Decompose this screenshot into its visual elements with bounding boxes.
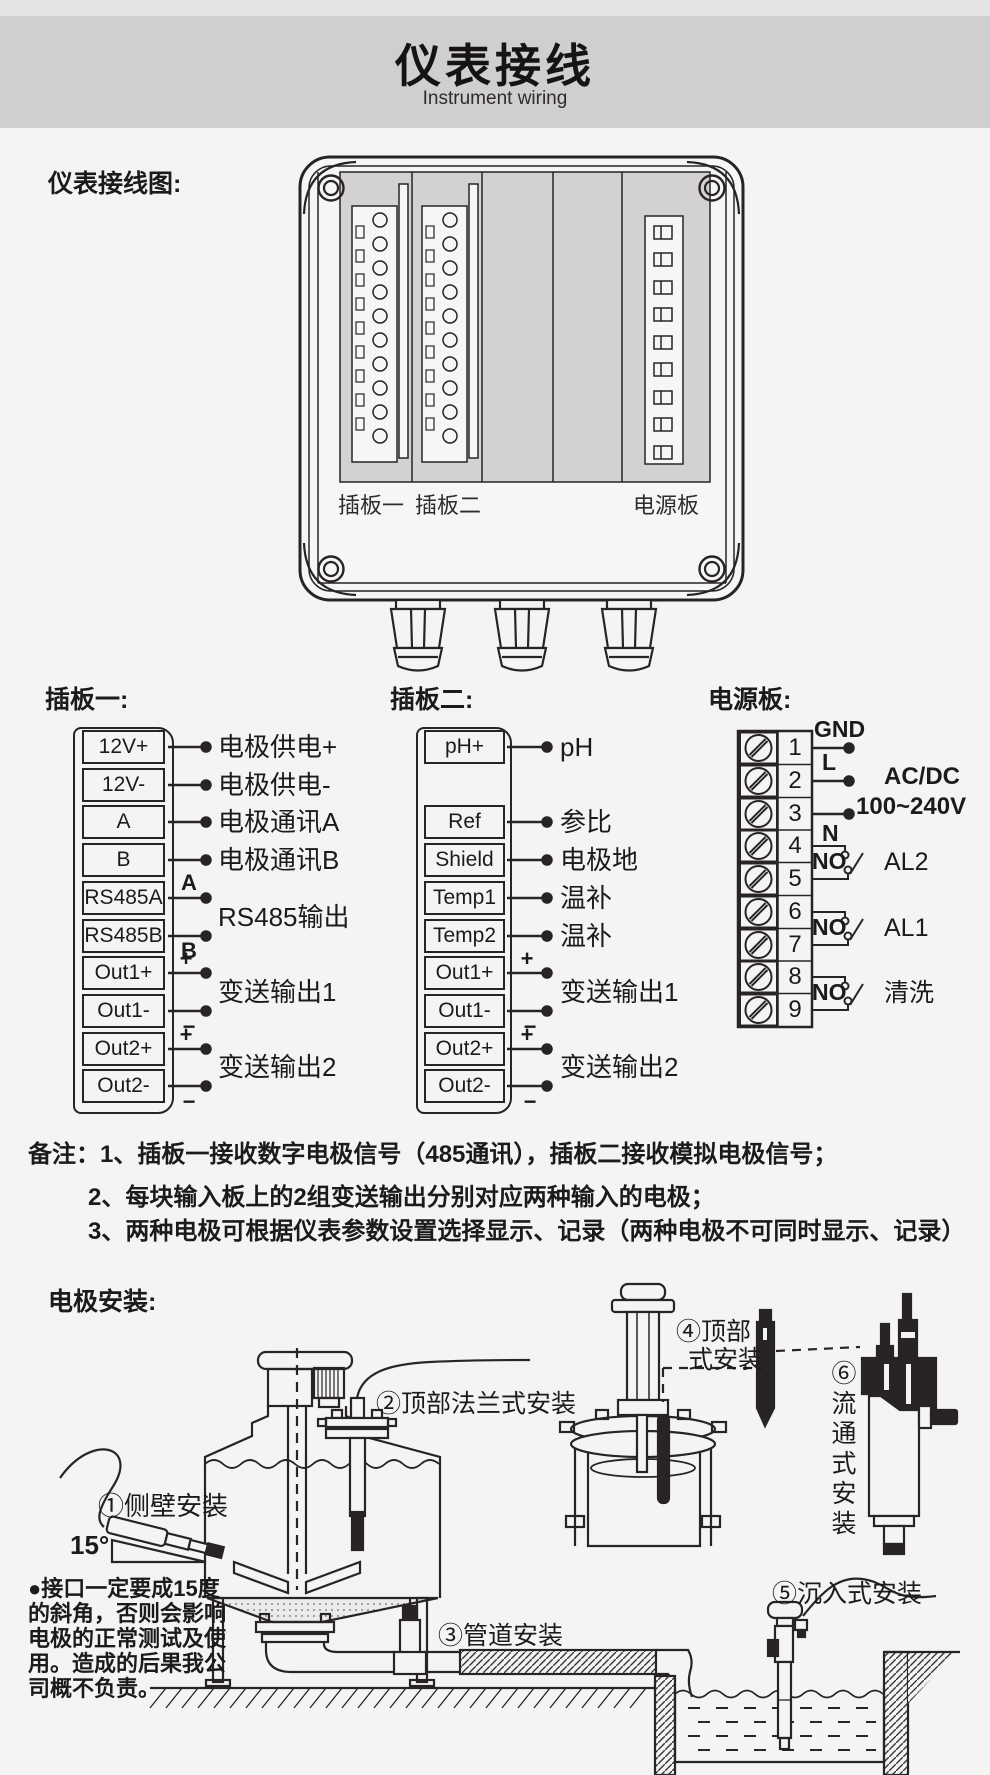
board2-wire-label-temp2: 温补 xyxy=(560,920,612,952)
board2-terminal-ref: Ref xyxy=(424,805,505,839)
board2-terminal-temp1: Temp1 xyxy=(424,881,505,915)
power-gnd-label: GND xyxy=(814,716,865,743)
board1-terminal-12v-minus: 12V- xyxy=(82,768,165,802)
power-terminal-9: 9 xyxy=(780,996,810,1024)
enclosure-drawing xyxy=(300,157,743,671)
power-terminal-7: 7 xyxy=(780,931,810,959)
board2-wire-label-ph: pH xyxy=(560,731,593,763)
board2-wire-label-ref: 参比 xyxy=(560,806,612,838)
power-terminal-3: 3 xyxy=(780,800,810,828)
install-warning-line3: 电极的正常测试及使 xyxy=(28,1626,226,1651)
power-supply-label-2: 100~240V xyxy=(856,793,966,821)
board1-out1-tag-plus: + xyxy=(175,946,197,972)
board1-terminal-rs485b: RS485B xyxy=(82,919,165,953)
board1-terminal-out1-minus: Out1- xyxy=(82,994,165,1028)
board1-terminal-out2-minus: Out2- xyxy=(82,1069,165,1103)
notes-line-2: 2、每块输入板上的2组变送输出分别对应两种输入的电极； xyxy=(88,1184,715,1212)
board2-terminal-out2-minus: Out2- xyxy=(424,1069,505,1103)
board2-terminal-out1-minus: Out1- xyxy=(424,994,505,1028)
install-method1-label: ①侧壁安装 xyxy=(98,1486,228,1523)
flow-cell-drawing xyxy=(862,1294,957,1554)
power-terminal-1: 1 xyxy=(780,734,810,762)
board2-terminal-out1-plus: Out1+ xyxy=(424,956,505,990)
install-method4-label-line2: 式安装 xyxy=(688,1340,763,1376)
board1-wire-label-supply-plus: 电极供电+ xyxy=(218,731,337,763)
board1-out2-tag-plus: + xyxy=(175,1022,197,1048)
enclosure-label-slot2: 插板二 xyxy=(415,488,481,520)
board2-out1-label: 变送输出1 xyxy=(560,976,678,1008)
board1-terminal-a: A xyxy=(82,805,165,839)
install-warning-line1: ●接口一定要成15度 xyxy=(28,1576,220,1601)
board1-rs485-tag-a: A xyxy=(178,870,200,896)
install-method2-label: ②顶部法兰式安装 xyxy=(376,1384,576,1420)
board1-out2-tag-minus: − xyxy=(178,1089,200,1115)
power-relay3-no: NO xyxy=(812,979,847,1006)
install-warning-line2: 的斜角，否则会影响 xyxy=(28,1601,226,1626)
board1-wire-label-supply-minus: 电极供电- xyxy=(218,769,331,801)
board1-heading: 插板一: xyxy=(45,680,128,716)
board1-terminal-b: B xyxy=(82,843,165,877)
ground-hatch xyxy=(150,1688,658,1708)
board1-out2-label: 变送输出2 xyxy=(218,1051,336,1083)
header-top-strip xyxy=(0,0,990,16)
board2-heading: 插板二: xyxy=(390,680,473,716)
board1-terminal-out2-plus: Out2+ xyxy=(82,1032,165,1066)
enclosure-label-power: 电源板 xyxy=(633,488,699,520)
board1-terminal-out1-plus: Out1+ xyxy=(82,956,165,990)
board2-terminal-temp2: Temp2 xyxy=(424,919,505,953)
power-terminal-5: 5 xyxy=(780,865,810,893)
board1-out1-label: 变送输出1 xyxy=(218,976,336,1008)
board2-terminal-ph-plus: pH+ xyxy=(424,730,505,764)
power-relay2-no: NO xyxy=(812,914,847,941)
board2-wire-label-temp1: 温补 xyxy=(560,882,612,914)
board1-wire-label-comm-a: 电极通讯A xyxy=(218,806,339,838)
board2-terminal-out2-plus: Out2+ xyxy=(424,1032,505,1066)
install-method6-label: ⑥流通式安装 xyxy=(824,1360,860,1540)
board2-wire-label-shield: 电极地 xyxy=(560,844,638,876)
board1-rs485-output-label: RS485输出 xyxy=(218,901,350,933)
power-relay1-label: AL2 xyxy=(884,846,928,878)
install-method3-label: ③管道安装 xyxy=(438,1616,563,1652)
board1-terminal-rs485a: RS485A xyxy=(82,881,165,915)
power-terminal-2: 2 xyxy=(780,767,810,795)
enclosure-label-slot1: 插板一 xyxy=(338,488,404,520)
power-relay3-label: 清洗 xyxy=(884,977,934,1009)
board2-out2-tag-minus: − xyxy=(519,1089,541,1115)
notes-line-3: 3、两种电极可根据仪表参数设置选择显示、记录（两种电极不可同时显示、记录） xyxy=(88,1218,965,1246)
install-method5-label: ⑤沉入式安装 xyxy=(772,1574,922,1610)
power-supply-label-1: AC/DC xyxy=(884,763,960,791)
page-title: 仪表接线 xyxy=(0,30,990,96)
board2-out2-tag-plus: + xyxy=(516,1022,538,1048)
power-terminal-4: 4 xyxy=(780,832,810,860)
power-line-label: L xyxy=(822,749,836,776)
board2-terminal-shield: Shield xyxy=(424,843,505,877)
notes-line-1: 备注：1、插板一接收数字电极信号（485通讯），插板二接收模拟电极信号； xyxy=(28,1141,837,1169)
board2-out2-label: 变送输出2 xyxy=(560,1051,678,1083)
power-relay2-label: AL1 xyxy=(884,912,928,944)
board1-wire-label-comm-b: 电极通讯B xyxy=(218,844,339,876)
power-heading: 电源板: xyxy=(708,680,791,716)
power-terminal-6: 6 xyxy=(780,898,810,926)
page: 仪表接线 Instrument wiring xyxy=(0,0,990,1775)
install-heading: 电极安装: xyxy=(48,1282,156,1318)
power-relay1-no: NO xyxy=(812,848,847,875)
cable-glands xyxy=(391,600,656,671)
board2-out1-tag-plus: + xyxy=(516,946,538,972)
power-terminal-8: 8 xyxy=(780,963,810,991)
page-subtitle: Instrument wiring xyxy=(0,88,990,110)
power-neutral-label: N xyxy=(822,820,839,847)
wiring-diagram-heading: 仪表接线图: xyxy=(48,164,181,200)
board1-terminal-12v-plus: 12V+ xyxy=(82,730,165,764)
install-warning-line5: 司概不负责。 xyxy=(28,1676,160,1701)
install-angle-label: 15° xyxy=(70,1530,109,1561)
install-warning-line4: 用。造成的后果我公 xyxy=(28,1651,226,1676)
